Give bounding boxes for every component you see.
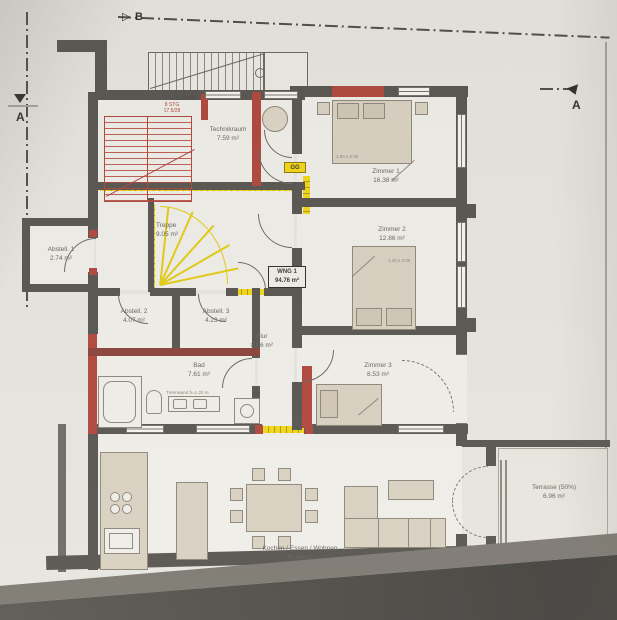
red-stair-middle — [147, 117, 148, 201]
pillow — [337, 103, 359, 119]
room-area: 4.07 m² — [108, 317, 160, 326]
room-name: Abstell. 1 — [36, 246, 86, 255]
wall-h5-seg4 — [264, 288, 302, 296]
nightstand — [317, 102, 330, 115]
wall-abstell1-top — [22, 218, 98, 226]
pillow — [386, 308, 412, 326]
exterior-step — [464, 546, 496, 548]
window-zimmer1-right — [457, 114, 466, 168]
room-label-abstell2: Abstell. 2 4.07 m² — [108, 308, 160, 326]
wall-treppe-left — [148, 198, 154, 292]
pillow — [356, 308, 382, 326]
room-label-bad: Bad 7.61 m² — [180, 362, 218, 380]
stair-annotation: 8 STG 17.5/28 — [142, 102, 202, 114]
pier-right-2 — [467, 318, 476, 332]
section-label-top: B — [135, 11, 143, 23]
room-name: Zimmer 2 — [364, 226, 420, 235]
room-area: 8.06 m² — [242, 342, 282, 351]
flur-floor-lower — [258, 290, 294, 426]
window-stairblock-1 — [205, 91, 241, 99]
room-label-wohnen: Kochen / Essen / Wohnen 41.84 m² — [238, 545, 362, 563]
wall-corridor-a — [292, 96, 302, 154]
apartment-tag: WNG 1 94.76 m² — [268, 266, 306, 288]
stair-note-line2: 17.5/28 — [142, 108, 202, 114]
washbasin — [193, 399, 207, 409]
wall-h5-seg1 — [95, 288, 120, 296]
room-area: 4.23 m² — [190, 317, 242, 326]
red-jamb-5 — [305, 425, 313, 434]
room-label-abstell3: Abstell. 3 4.23 m² — [190, 308, 242, 326]
red-jamb-4 — [255, 425, 263, 434]
wall-corridor-d — [292, 382, 302, 430]
wall-outer-stub-left — [58, 424, 66, 572]
room-label-zimmer1: Zimmer 1 16.38 m² — [358, 168, 414, 186]
room-name: Flur — [242, 333, 282, 342]
dining-chair — [278, 468, 291, 481]
room-name: Zimmer 3 — [350, 362, 406, 371]
room-name: Technikraum — [200, 126, 256, 135]
window-zimmer2-right-1 — [457, 222, 466, 262]
room-area: 6.96 m² — [520, 493, 588, 502]
room-area: 12.86 m² — [364, 235, 420, 244]
stair-column — [255, 68, 265, 78]
apartment-area: 94.76 m² — [271, 277, 303, 286]
dining-chair — [252, 468, 265, 481]
room-label-treppe: Treppe 9.05 m² — [156, 222, 200, 240]
terrace-rail-line1 — [500, 460, 502, 544]
exterior-step — [464, 560, 496, 562]
window-stairblock-2 — [264, 91, 298, 99]
sofa-cushion-line — [408, 519, 409, 547]
window-zimmer2-right-2 — [457, 266, 466, 308]
wall-left-upper — [88, 92, 98, 238]
door-gap-zimmer3-right — [456, 354, 467, 424]
section-line-top — [118, 16, 610, 38]
wall-abstell1-left — [22, 218, 30, 292]
sofa-cushion-line — [378, 519, 379, 547]
room-label-zimmer2: Zimmer 2 12.86 m² — [364, 226, 420, 244]
toilet — [146, 390, 162, 414]
pier-right-1 — [467, 204, 476, 218]
room-area: 2.74 m² — [36, 255, 86, 264]
cooktop-burner — [110, 492, 120, 502]
room-name: Terrasse (50%) — [520, 484, 588, 493]
window-kitchen-3 — [398, 425, 444, 433]
sofa-cushion-line — [430, 519, 431, 547]
wall-zimmer1-2 — [295, 198, 467, 207]
room-name: Abstell. 3 — [190, 308, 242, 317]
room-name: Bad — [180, 362, 218, 371]
dining-chair — [305, 488, 318, 501]
wall-left-mid — [88, 272, 98, 334]
dining-chair — [230, 510, 243, 523]
room-label-flur: Flur 8.06 m² — [242, 333, 282, 351]
floor-plan-photo: A A ▷ B GG — [0, 0, 617, 620]
boiler-circle — [262, 106, 288, 132]
dining-chair — [230, 488, 243, 501]
apartment-id: WNG 1 — [271, 268, 303, 277]
tv-sideboard — [388, 480, 434, 500]
window-zimmer1-top — [398, 87, 430, 96]
wall-abstell2-3 — [172, 288, 180, 350]
room-name: Kochen / Essen / Wohnen — [238, 545, 362, 554]
section-label-right: A — [572, 98, 581, 112]
terrace-rail-line2 — [505, 460, 507, 544]
tick-line-left — [8, 105, 38, 107]
cooktop-burner — [122, 504, 132, 514]
partition-note: Trennwand h=1.20 m — [166, 390, 208, 395]
washbasin — [173, 399, 187, 409]
window-kitchen-2 — [196, 425, 250, 433]
bed1-dimension: 1.80 x 2.00 — [336, 154, 358, 159]
wall-h5-seg3 — [226, 288, 238, 296]
bathtub-inner — [103, 381, 136, 423]
kitchen-island — [176, 482, 208, 560]
wall-terrace-door-top — [486, 444, 496, 466]
room-label-abstell1: Abstell. 1 2.74 m² — [36, 246, 86, 264]
pillow — [363, 103, 385, 119]
dining-table — [246, 484, 302, 532]
room-area: 41.84 m² — [238, 554, 362, 563]
wall-living-left — [88, 430, 98, 570]
room-name: Zimmer 1 — [358, 168, 414, 177]
room-area: 16.38 m² — [358, 177, 414, 186]
kitchen-sink-basin — [109, 533, 133, 549]
room-label-zimmer3: Zimmer 3 8.53 m² — [350, 362, 406, 380]
room-area: 9.05 m² — [156, 231, 200, 240]
exterior-step — [464, 553, 496, 555]
wall-abstell1-bottom — [22, 284, 98, 292]
red-jamb-1 — [89, 230, 97, 237]
cooktop-burner — [122, 492, 132, 502]
room-name: Treppe — [156, 222, 200, 231]
redwall-bad-top — [88, 348, 260, 356]
wall-terrace-door-bottom — [486, 536, 496, 552]
room-label-terrasse: Terrasse (50%) 6.96 m² — [520, 484, 588, 502]
redwall-zimmer1-lintel — [332, 86, 384, 97]
wall-terrace-top — [462, 440, 610, 447]
washing-machine-drum — [240, 404, 254, 418]
room-area: 7.59 m² — [200, 135, 256, 144]
dining-chair — [305, 510, 318, 523]
room-area: 8.53 m² — [350, 371, 406, 380]
cooktop-burner — [110, 504, 120, 514]
level-annotation: 6.180 ÜK — [176, 96, 197, 102]
section-arrow-left — [14, 94, 26, 103]
room-area: 7.61 m² — [180, 371, 218, 380]
room-name: Abstell. 2 — [108, 308, 160, 317]
section-label-left: A — [16, 110, 25, 124]
nightstand — [415, 102, 428, 115]
pillow — [320, 390, 338, 418]
section-arrow-right — [567, 84, 581, 97]
bed2-dimension: 1.40 x 2.00 — [388, 258, 410, 263]
section-arrow-top: ▷ — [122, 10, 130, 23]
room-label-technikraum: Technikraum 7.59 m² — [200, 126, 256, 144]
